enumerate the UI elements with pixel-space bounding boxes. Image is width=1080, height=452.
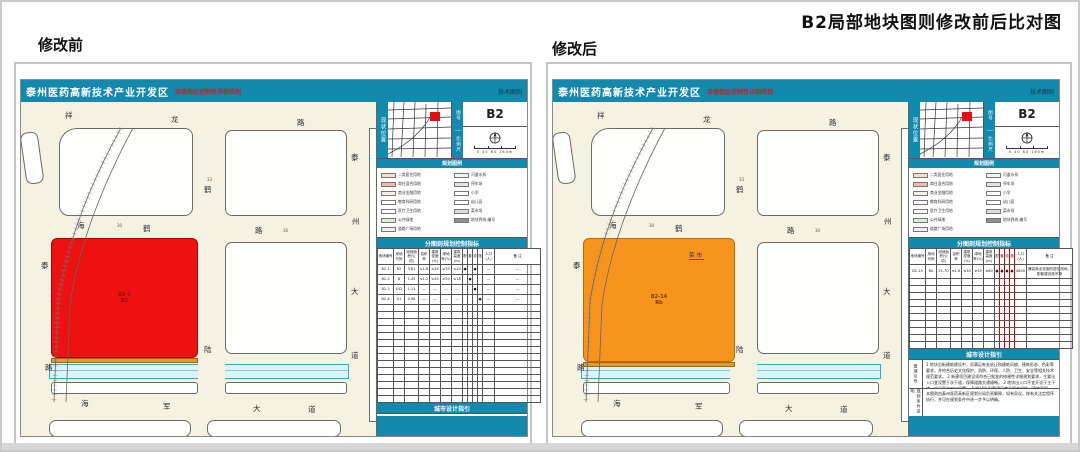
- table-column-header: 建筑密度(%): [430, 249, 441, 265]
- table-cell: —: [441, 295, 452, 305]
- legend-item: 商住混合用地: [913, 180, 984, 188]
- legend-label: 商业金融用地: [930, 190, 953, 196]
- legend-chip: [986, 191, 1001, 196]
- sheet-number: B2: [995, 102, 1059, 127]
- guide-note-stub: 管理引导: [909, 360, 923, 388]
- table-column-header: 绿地率(%): [441, 249, 452, 265]
- table-cell: ≤1.2: [419, 275, 430, 285]
- table-cell: B2-14: [910, 265, 926, 279]
- legend-item: 小学: [986, 189, 1057, 197]
- table-empty-row: [378, 319, 541, 326]
- table-cell: 4800: [1015, 265, 1027, 279]
- plan-map: B2-14 Rb 菜市 祥龙路泰州大道33鹤陆海30鹤路30泰路海军大道: [553, 102, 909, 436]
- table-cell: ≤30: [962, 265, 973, 279]
- guide-note-row: 管理引导1 地块沿街建筑建设中，须满足有关退让和建筑风貌、建筑形态、色彩等要求，…: [909, 360, 1059, 389]
- legend-item: 小学: [454, 189, 525, 197]
- curved-road: [553, 102, 909, 436]
- plan-header: 泰州医药高新技术产业开发区 寺巷街区控制性详细规划 技术图则: [21, 80, 527, 102]
- table-cell: 1.11: [405, 285, 419, 295]
- compass-icon: [1020, 131, 1034, 145]
- table-cell: R2: [394, 265, 405, 275]
- table-column-header: 用地代码: [394, 249, 405, 265]
- legend-label: 停车场: [1003, 181, 1014, 187]
- legend-label: 菜市场: [471, 208, 482, 214]
- table-cell: 3.81: [405, 265, 419, 275]
- road-label: 30: [283, 229, 288, 233]
- legend-item: 商业金融用地: [381, 189, 452, 197]
- table-cell: ≤25: [430, 265, 441, 275]
- road-label: 路: [787, 227, 795, 235]
- scale-bar: [1006, 146, 1048, 149]
- legend-chip: [913, 200, 928, 205]
- after-panel-frame: 泰州医药高新技术产业开发区 寺巷街区控制性详细规划 技术图则 B2-14: [546, 62, 1072, 446]
- sheet-strip: 图号 比例尺: [984, 102, 995, 158]
- locator-map: [920, 102, 984, 158]
- table-cell: 0.98: [405, 295, 419, 305]
- legend-item: 公共绿地: [381, 216, 452, 224]
- road-label: 军: [695, 403, 703, 411]
- compass-icon: [488, 131, 502, 145]
- road-label: 33: [739, 178, 744, 182]
- legend-chip: [381, 173, 396, 178]
- before-label: 修改前: [38, 34, 83, 55]
- table-cell: —: [419, 285, 430, 295]
- table-empty-row: [910, 300, 1073, 307]
- table-column-header: 建筑高度(m): [984, 249, 995, 265]
- road-label: 大: [253, 405, 261, 413]
- legend-label: 幼儿园: [1003, 199, 1014, 205]
- plan-header: 泰州医药高新技术产业开发区 寺巷街区控制性详细规划 技术图则: [553, 80, 1059, 102]
- table-cell: —: [430, 295, 441, 305]
- road-label: 鹤: [143, 225, 151, 233]
- table-cell: —: [495, 265, 541, 275]
- plan-map: B2-1 B2 祥龙路泰州大道33鹤陆海30鹤路30泰路海军大道: [21, 102, 377, 436]
- legend-label: 小学: [1003, 190, 1011, 196]
- locator-strip-label: 现状位置: [909, 102, 920, 158]
- road-label: 大: [785, 405, 793, 413]
- road-label: 路: [297, 119, 305, 127]
- legend-chip: [913, 173, 928, 178]
- legend-label: 商住混合用地: [930, 181, 953, 187]
- road-label: 祥: [65, 112, 73, 120]
- table-column-header: 地块编号: [910, 249, 926, 265]
- table-row: B2-2B1.45≤1.2≤40≥20≤18●——: [378, 275, 541, 285]
- road-label: 泰: [573, 262, 581, 270]
- legend-chip: [381, 182, 396, 187]
- table-cell: B2-4: [378, 295, 394, 305]
- legend-item: 河道水系: [986, 171, 1057, 179]
- guide-title-bar: 城市设计指引: [909, 349, 1059, 359]
- table-cell: —: [495, 285, 541, 295]
- legend-item: 菜市场: [986, 207, 1057, 215]
- road-label: 大: [883, 288, 891, 296]
- table-row: B2-4G10.98————●——: [378, 295, 541, 305]
- sheet-no-label: 图号: [987, 102, 993, 131]
- road-label: 道: [883, 352, 891, 360]
- legend-chip: [454, 173, 469, 178]
- plan-tag: 技术图则: [498, 87, 522, 96]
- legend-label: 道路广场用地: [930, 226, 953, 232]
- road-label: 路: [577, 364, 585, 372]
- legend-label: 商住混合用地: [398, 181, 421, 187]
- legend-label: 教育科研用地: [398, 199, 421, 205]
- table-title-bar: 分图则规划控制指标: [909, 238, 1059, 248]
- sheet-no-label: 图号: [455, 102, 461, 131]
- road-label: 州: [884, 218, 892, 226]
- sheet-strip: 图号 比例尺: [452, 102, 463, 158]
- table-cell: ≤24: [452, 265, 463, 275]
- road-label: 30: [117, 224, 122, 228]
- legend-chip: [454, 182, 469, 187]
- plan-title: 泰州医药高新技术产业开发区: [558, 84, 701, 99]
- road-label: 海: [81, 400, 89, 408]
- legend-chip: [381, 209, 396, 214]
- table-cell: ≥35: [973, 265, 984, 279]
- legend-chip: [381, 191, 396, 196]
- legend-item: 菜市场: [454, 207, 525, 215]
- bottom-border-band: [2, 443, 1078, 450]
- table-row: B2-3S421.11————●——: [378, 285, 541, 295]
- table-column-header: 地块编号: [378, 249, 394, 265]
- table-cell: —: [419, 295, 430, 305]
- locator-strip-label: 现状位置: [377, 102, 388, 158]
- table-empty-row: [910, 342, 1073, 349]
- guide-note-text: 1 地块沿街建筑建设中，须满足有关退让和建筑风貌、建筑形态、色彩等要求，并符合历…: [923, 360, 1059, 388]
- table-column-header: 备 注: [495, 249, 541, 265]
- table-column-header: 建筑密度(%): [962, 249, 973, 265]
- table-cell: —: [495, 295, 541, 305]
- comparison-sheet: B2局部地块图则修改前后比对图 修改前 修改后 泰州医药高新技术产业开发区 寺巷…: [0, 0, 1080, 452]
- table-cell: —: [483, 265, 495, 275]
- scale-text: 0 40 80 160m: [477, 150, 514, 154]
- legend-label: 商业金融用地: [398, 190, 421, 196]
- legend-chip: [913, 182, 928, 187]
- table-cell: Rb: [926, 265, 937, 279]
- legend-item: 地块界线·编号: [454, 216, 525, 224]
- legend-label: 小学: [471, 190, 479, 196]
- control-indicator-table: 地块编号用地代码用地面积(公顷)容积率建筑密度(%)绿地率(%)建筑高度(m)配…: [909, 248, 1073, 349]
- legend-item: 幼儿园: [986, 198, 1057, 206]
- table-cell: S42: [394, 285, 405, 295]
- legend-label: 教育科研用地: [930, 199, 953, 205]
- legend-chip: [454, 191, 469, 196]
- legend-chip: [913, 218, 928, 223]
- table-row: B2-14Rb21.70≤1.8≤30≥35≤60●●●●4800兼容商业设施的…: [910, 265, 1073, 279]
- legend-item: 停车场: [986, 180, 1057, 188]
- table-cell: —: [452, 285, 463, 295]
- guide-note-row: 规划条件说明本图则由泰州医药高新区规划分局负责解释，如有异议，按有关法定程序执行…: [909, 389, 1059, 417]
- table-header-row: 地块编号用地代码用地面积(公顷)容积率建筑密度(%)绿地率(%)建筑高度(m)配…: [378, 249, 541, 265]
- legend-item: 教育科研用地: [381, 198, 452, 206]
- plan-subtitle: 寺巷街区控制性详细规划: [707, 87, 773, 96]
- plan-document: 泰州医药高新技术产业开发区 寺巷街区控制性详细规划 技术图则 B2-1: [20, 79, 528, 437]
- legend-item: 地块界线·编号: [986, 216, 1057, 224]
- table-empty-row: [910, 335, 1073, 342]
- table-column-header: 建筑高度(m): [452, 249, 463, 265]
- plan-title: 泰州医药高新技术产业开发区: [26, 84, 169, 99]
- legend-label: 菜市场: [1003, 208, 1014, 214]
- legend-chip: [986, 173, 1001, 178]
- road-label: 龙: [703, 116, 711, 124]
- legend-item: 河道水系: [454, 171, 525, 179]
- table-empty-row: [378, 305, 541, 312]
- road-label: 道: [351, 352, 359, 360]
- road-label: 33: [207, 178, 212, 182]
- table-row: B2-1R23.81≤1.8≤25≥35≤24●●——: [378, 265, 541, 275]
- legend-item: 教育科研用地: [913, 198, 984, 206]
- locator-row: 现状位置 图号 比例尺: [909, 102, 1059, 159]
- guide-note-text: 本图则由泰州医药高新区规划分局负责解释，如有异议，按有关法定程序执行，并可在规划…: [923, 389, 1059, 417]
- table-empty-row: [378, 361, 541, 368]
- legend-label: 医疗卫生用地: [398, 208, 421, 214]
- info-footer-bar: [377, 416, 527, 436]
- table-empty-row: [378, 312, 541, 319]
- table-cell: ≥20: [441, 275, 452, 285]
- legend-label: 二类居住用地: [398, 172, 421, 178]
- table-column-header: 用地代码: [926, 249, 937, 265]
- plan-subtitle: 寺巷街区控制性详细规划: [175, 87, 241, 96]
- legend-item: 公共绿地: [913, 216, 984, 224]
- table-column-header: 用地面积(公顷): [937, 249, 951, 265]
- locator-row: 现状位置 图号 比例尺: [377, 102, 527, 159]
- table-cell: B2-3: [378, 285, 394, 295]
- legend-grid: 二类居住用地商住混合用地商业金融用地教育科研用地医疗卫生用地公共绿地道路广场用地…: [909, 168, 1059, 238]
- legend-chip: [913, 209, 928, 214]
- table-empty-row: [378, 396, 541, 403]
- road-label: 道: [840, 406, 848, 414]
- guide-notes: 管理引导1 地块沿街建筑建设中，须满足有关退让和建筑风貌、建筑形态、色彩等要求，…: [909, 359, 1059, 416]
- table-header-row: 地块编号用地代码用地面积(公顷)容积率建筑密度(%)绿地率(%)建筑高度(m)配…: [910, 249, 1073, 265]
- table-column-header: 人口(人): [483, 249, 495, 265]
- table-cell: ≤40: [430, 275, 441, 285]
- table-column-header: 容积率: [419, 249, 430, 265]
- legend-title-bar: 规划图例: [377, 159, 527, 168]
- road-label: 路: [45, 364, 53, 372]
- table-cell: —: [441, 285, 452, 295]
- legend-label: 公共绿地: [930, 217, 945, 223]
- guide-title-bar: 城市设计指引: [377, 403, 527, 413]
- road-label: 鹤: [736, 186, 744, 194]
- legend-chip: [454, 218, 469, 223]
- legend-label: 地块界线·编号: [1003, 217, 1027, 223]
- table-empty-row: [378, 389, 541, 396]
- table-empty-row: [910, 286, 1073, 293]
- table-empty-row: [910, 321, 1073, 328]
- road-label: 海: [613, 400, 621, 408]
- legend-item: 商业金融用地: [913, 189, 984, 197]
- legend-label: 医疗卫生用地: [930, 208, 953, 214]
- legend-item: 道路广场用地: [381, 225, 452, 233]
- road-label: 陆: [204, 346, 212, 354]
- road-label: 海: [77, 222, 85, 230]
- control-indicator-table: 地块编号用地代码用地面积(公顷)容积率建筑密度(%)绿地率(%)建筑高度(m)配…: [377, 248, 541, 403]
- table-cell: ≤18: [452, 275, 463, 285]
- locator-marker: [430, 112, 440, 121]
- table-empty-row: [378, 347, 541, 354]
- legend-chip: [913, 227, 928, 232]
- legend-chip: [913, 191, 928, 196]
- legend-item: 医疗卫生用地: [381, 207, 452, 215]
- table-empty-row: [910, 307, 1073, 314]
- sheet-number: B2: [463, 102, 527, 127]
- legend-label: 地块界线·编号: [471, 217, 495, 223]
- info-column: 现状位置 图号 比例尺: [909, 102, 1059, 436]
- after-label: 修改后: [552, 38, 597, 59]
- table-cell: 21.70: [937, 265, 951, 279]
- legend-item: 医疗卫生用地: [913, 207, 984, 215]
- table-column-header: 人口(人): [1015, 249, 1027, 265]
- legend-grid: 二类居住用地商住混合用地商业金融用地教育科研用地医疗卫生用地公共绿地道路广场用地…: [377, 168, 527, 238]
- table-empty-row: [378, 340, 541, 347]
- table-cell: B2-1: [378, 265, 394, 275]
- road-label: 鹤: [204, 186, 212, 194]
- table-empty-row: [378, 375, 541, 382]
- table-column-header: 容积率: [951, 249, 962, 265]
- legend-chip: [986, 218, 1001, 223]
- sheet-cell: B2 0 40 80 160m: [995, 102, 1059, 158]
- legend-title-bar: 规划图例: [909, 159, 1059, 168]
- table-empty-row: [910, 293, 1073, 300]
- guide-note-stub: 规划条件说明: [909, 389, 923, 417]
- table-column-header: 备 注: [1027, 249, 1073, 265]
- before-panel-frame: 泰州医药高新技术产业开发区 寺巷街区控制性详细规划 技术图则 B2-1: [14, 62, 532, 446]
- legend-chip: [454, 200, 469, 205]
- table-cell: B: [394, 275, 405, 285]
- road-label: 龙: [171, 116, 179, 124]
- legend-item: 道路广场用地: [913, 225, 984, 233]
- road-label: 30: [815, 229, 820, 233]
- road-label: 陆: [736, 346, 744, 354]
- table-empty-row: [910, 279, 1073, 286]
- scale-label: 比例尺: [987, 131, 993, 159]
- table-cell: —: [483, 275, 495, 285]
- road-label: 道: [308, 406, 316, 414]
- table-empty-row: [910, 328, 1073, 335]
- locator-grid: [388, 102, 451, 157]
- road-label: 鹤: [675, 225, 683, 233]
- road-label: 路: [829, 119, 837, 127]
- road-label: 泰: [41, 262, 49, 270]
- table-cell: ≤60: [984, 265, 995, 279]
- table-cell: —: [495, 275, 541, 285]
- legend-label: 停车场: [471, 181, 482, 187]
- road-label: 海: [609, 222, 617, 230]
- table-empty-row: [378, 368, 541, 375]
- table-title-bar: 分图则规划控制指标: [377, 238, 527, 248]
- table-column-header: 绿地率(%): [973, 249, 984, 265]
- road-label: 泰: [883, 154, 891, 162]
- legend-item: 商住混合用地: [381, 180, 452, 188]
- table-cell: —: [452, 295, 463, 305]
- legend-chip: [986, 200, 1001, 205]
- legend-chip: [986, 182, 1001, 187]
- legend-label: 二类居住用地: [930, 172, 953, 178]
- legend-chip: [381, 227, 396, 232]
- legend-label: 河道水系: [1003, 172, 1018, 178]
- legend-item: 幼儿园: [454, 198, 525, 206]
- table-cell: —: [483, 285, 495, 295]
- scale-label: 比例尺: [455, 131, 461, 159]
- table-cell: 1.45: [405, 275, 419, 285]
- scale-text: 0 40 80 160m: [1009, 150, 1046, 154]
- table-cell: B2-2: [378, 275, 394, 285]
- info-footer-bar: [909, 416, 1059, 436]
- plan-document: 泰州医药高新技术产业开发区 寺巷街区控制性详细规划 技术图则 B2-14: [552, 79, 1060, 437]
- legend-label: 幼儿园: [471, 199, 482, 205]
- road-label: 30: [649, 224, 654, 228]
- table-empty-row: [378, 326, 541, 333]
- locator-grid: [920, 102, 983, 157]
- legend-chip: [381, 218, 396, 223]
- legend-chip: [381, 200, 396, 205]
- legend-item: 二类居住用地: [913, 171, 984, 179]
- road-label: 泰: [351, 154, 359, 162]
- sheet-cell: B2 0 40 80 160m: [463, 102, 527, 158]
- locator-marker: [962, 112, 972, 121]
- road-label: 大: [351, 288, 359, 296]
- curved-road: [21, 102, 377, 436]
- table-cell: 兼容商业设施的居住用地，配套建设菜市场: [1027, 265, 1073, 279]
- road-label: 祥: [597, 112, 605, 120]
- table-column-header: 用地面积(公顷): [405, 249, 419, 265]
- page-title: B2局部地块图则修改前后比对图: [801, 8, 1062, 33]
- locator-map: [388, 102, 452, 158]
- table-cell: ≤1.8: [951, 265, 962, 279]
- table-empty-row: [910, 314, 1073, 321]
- legend-item: 停车场: [454, 180, 525, 188]
- legend-label: 公共绿地: [398, 217, 413, 223]
- table-cell: —: [483, 295, 495, 305]
- scale-bar: [474, 146, 516, 149]
- table-cell: —: [430, 285, 441, 295]
- legend-chip: [454, 209, 469, 214]
- table-cell: G1: [394, 295, 405, 305]
- legend-label: 道路广场用地: [398, 226, 421, 232]
- road-label: 路: [255, 227, 263, 235]
- legend-item: 二类居住用地: [381, 171, 452, 179]
- legend-chip: [986, 209, 1001, 214]
- table-empty-row: [378, 382, 541, 389]
- table-empty-row: [378, 333, 541, 340]
- legend-label: 河道水系: [471, 172, 486, 178]
- table-cell: ≤1.8: [419, 265, 430, 275]
- info-column: 现状位置 图号 比例尺: [377, 102, 527, 436]
- road-label: 州: [352, 218, 360, 226]
- table-empty-row: [378, 354, 541, 361]
- table-cell: ≥35: [441, 265, 452, 275]
- road-label: 军: [163, 403, 171, 411]
- plan-tag: 技术图则: [1030, 87, 1054, 96]
